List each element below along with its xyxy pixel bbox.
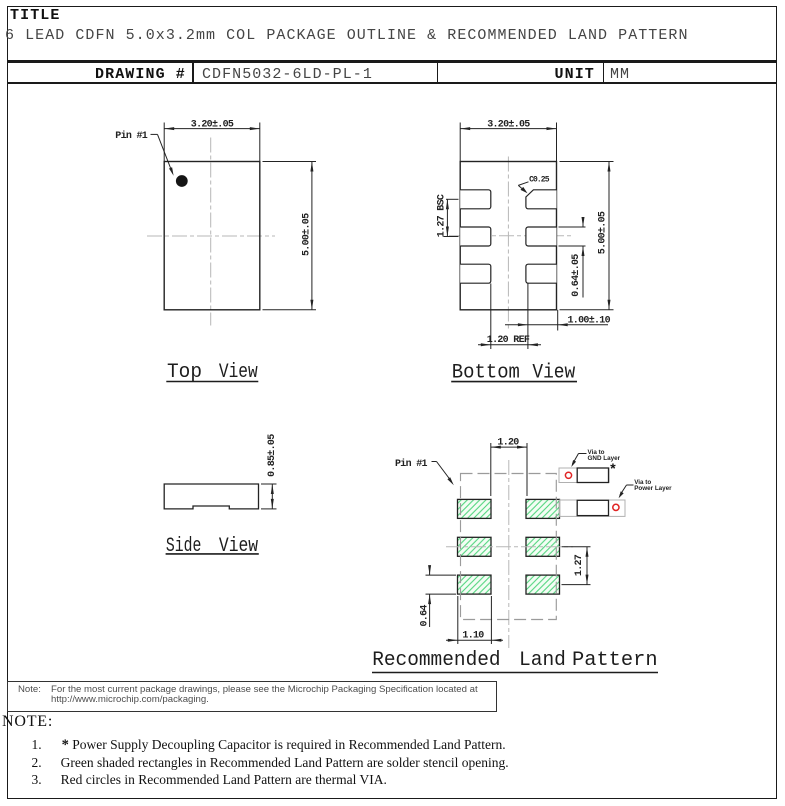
svg-text:Pin #1: Pin #1 xyxy=(395,458,428,470)
svg-text:Pin #1: Pin #1 xyxy=(115,130,148,142)
svg-text:GND Layer: GND Layer xyxy=(588,455,621,462)
svg-text:1.27 BSC: 1.27 BSC xyxy=(436,194,447,237)
svg-text:1.20: 1.20 xyxy=(497,438,519,449)
svg-text:C0.25: C0.25 xyxy=(529,175,550,184)
svg-text:0.64: 0.64 xyxy=(420,605,431,627)
svg-text:Top: Top xyxy=(167,361,202,384)
svg-text:Recommended: Recommended xyxy=(372,649,500,672)
svg-text:1.20 REF: 1.20 REF xyxy=(487,335,530,346)
svg-text:3.20±.05: 3.20±.05 xyxy=(487,119,530,130)
svg-text:View: View xyxy=(219,361,258,384)
svg-text:5.00±.05: 5.00±.05 xyxy=(598,211,609,254)
svg-text:5.00±.05: 5.00±.05 xyxy=(301,213,312,256)
svg-text:0.85±.05: 0.85±.05 xyxy=(267,434,278,477)
svg-text:1.27: 1.27 xyxy=(574,554,585,576)
svg-text:Pattern: Pattern xyxy=(572,649,658,672)
svg-text:1.00±.10: 1.00±.10 xyxy=(568,316,611,327)
svg-text:3.20±.05: 3.20±.05 xyxy=(191,119,234,130)
svg-text:0.64±.05: 0.64±.05 xyxy=(571,254,582,297)
svg-text:*: * xyxy=(609,463,617,479)
svg-text:Power Layer: Power Layer xyxy=(634,485,672,492)
svg-text:1.10: 1.10 xyxy=(462,631,484,642)
svg-text:Land: Land xyxy=(519,649,566,672)
